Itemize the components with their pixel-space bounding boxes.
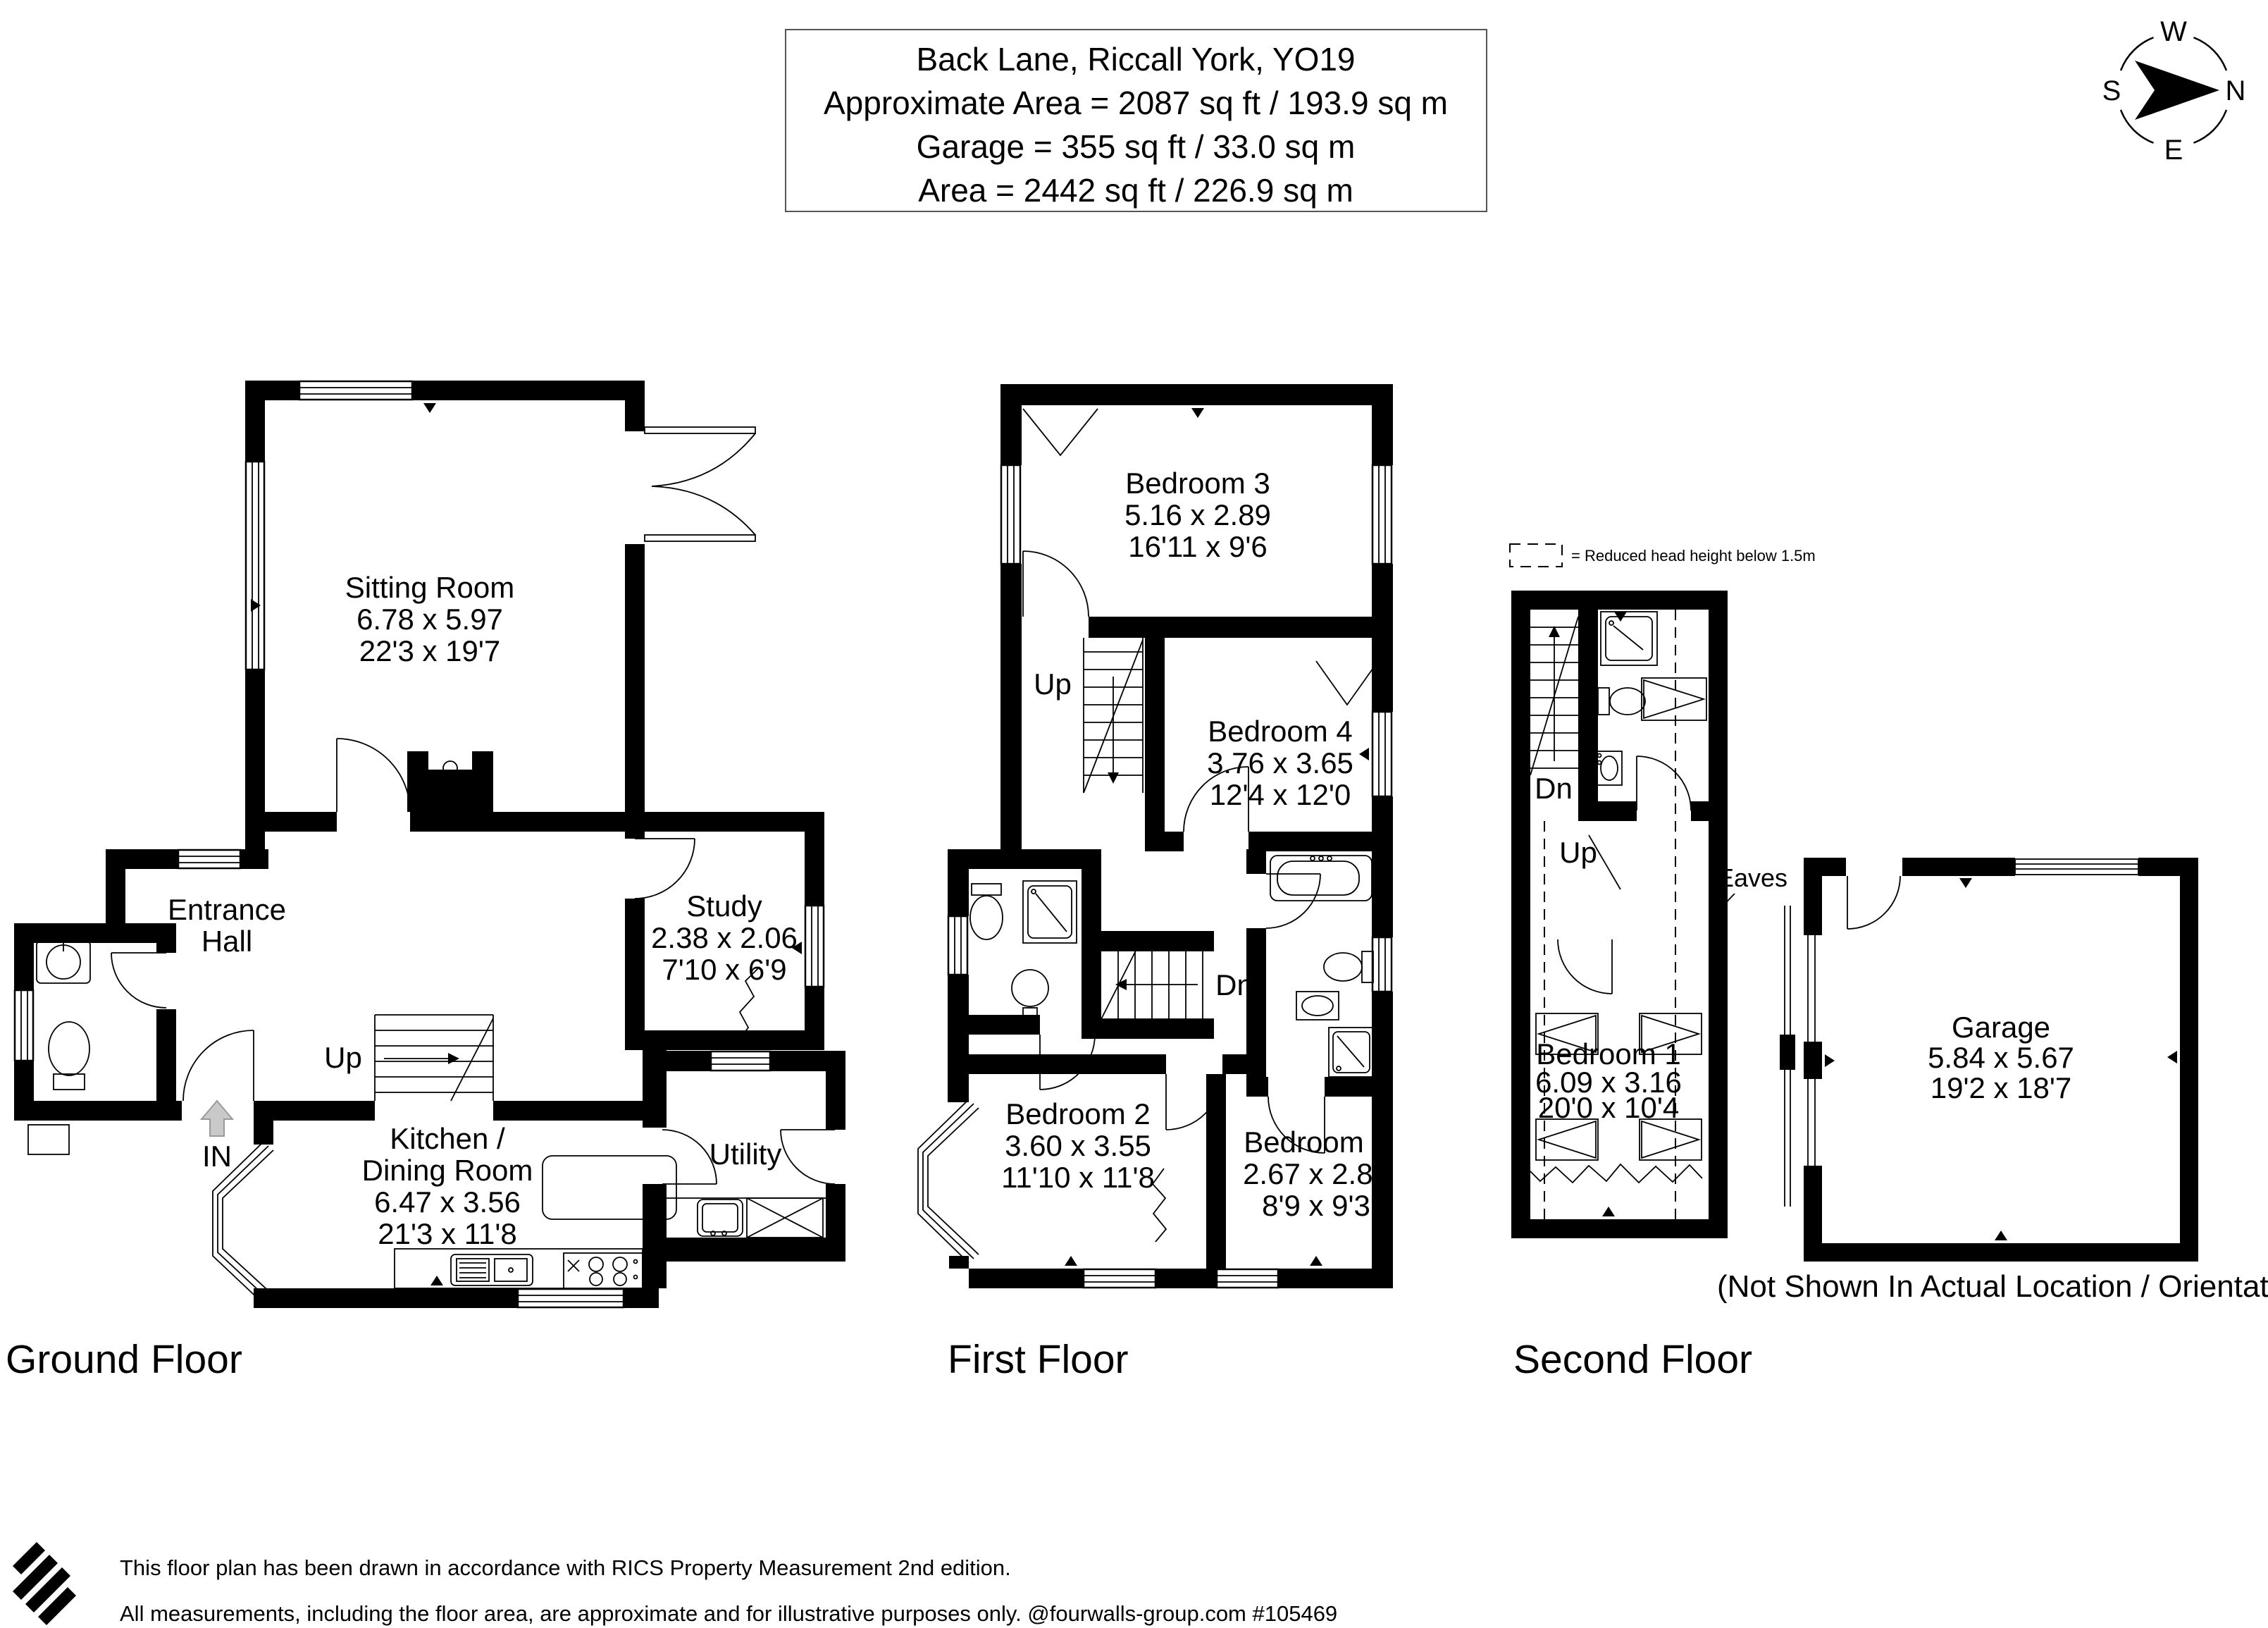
skylight-icon — [1536, 1119, 1598, 1160]
room-dim-metric: 6.78 x 5.97 — [357, 603, 503, 636]
stairs-up-label: Up — [1559, 836, 1597, 869]
window — [1372, 712, 1392, 796]
room-name: Garage — [1952, 1011, 2050, 1044]
stairs-down-label: Dn — [1215, 968, 1253, 1001]
window — [299, 381, 412, 400]
north-arrow-icon — [2135, 61, 2219, 120]
stove — [564, 1253, 643, 1288]
compass-north: N — [2226, 75, 2246, 106]
room-name: Bedroom 5 — [1244, 1126, 1388, 1159]
compass-east: E — [2164, 135, 2183, 166]
legend-text: = Reduced head height below 1.5m — [1571, 547, 1816, 565]
door-arc — [1558, 939, 1612, 994]
window — [246, 462, 264, 670]
room-name: Kitchen / — [390, 1122, 505, 1155]
window — [1217, 1269, 1278, 1288]
closet-doors — [1316, 661, 1378, 705]
room-dim-imperial: 21'3 x 11'8 — [378, 1217, 516, 1250]
room-dim-imperial: 8'9 x 9'3 — [1262, 1189, 1370, 1222]
room-dim-imperial: 7'10 x 6'9 — [662, 953, 786, 986]
dim-tick — [1825, 1054, 1835, 1067]
door-arc — [781, 1130, 835, 1184]
door-arc — [1023, 551, 1089, 617]
room-dim-metric: 3.76 x 3.65 — [1207, 746, 1353, 779]
fireplace — [407, 751, 493, 812]
total-area-line: Area = 2442 sq ft / 226.9 sq m — [918, 172, 1353, 209]
dim-tick — [2167, 1051, 2177, 1063]
room-dim-metric: 2.38 x 2.06 — [651, 921, 798, 954]
kitchen-sink — [451, 1254, 533, 1285]
window — [1372, 465, 1392, 564]
shower — [1023, 881, 1077, 943]
stairs-up — [1084, 638, 1143, 793]
stairs-up-label: Up — [324, 1041, 362, 1074]
skylight-icon — [1640, 1119, 1702, 1160]
room-name: Sitting Room — [345, 571, 514, 604]
footer-line2: All measurements, including the floor ar… — [120, 1601, 1337, 1626]
door-arc — [1637, 756, 1691, 810]
toilet — [49, 1022, 89, 1090]
garage-plan: Garage 5.84 x 5.67 19'2 x 18'7 (Not Show… — [1717, 858, 2268, 1304]
dim-tick — [1959, 878, 1972, 888]
room-dim-imperial: 11'10 x 11'8 — [1001, 1161, 1155, 1194]
window — [1001, 465, 1020, 564]
dim-tick — [1602, 1207, 1615, 1216]
door-arc — [337, 739, 410, 812]
window — [1084, 1269, 1155, 1288]
room-name: Hall — [202, 925, 252, 958]
window — [805, 906, 824, 987]
shower — [1329, 1028, 1374, 1077]
title-box: Back Lane, Riccall York, YO19 Approximat… — [786, 30, 1487, 211]
stairs-down — [1530, 617, 1578, 775]
dim-tick — [1359, 748, 1369, 760]
stairs-down — [1101, 951, 1214, 1019]
fourwalls-logo — [13, 1542, 76, 1625]
bay-window — [918, 1091, 979, 1269]
door-arc — [1847, 876, 1900, 929]
compass-icon: W N E S — [2092, 10, 2255, 171]
address-line: Back Lane, Riccall York, YO19 — [916, 41, 1355, 78]
bathtub — [1270, 856, 1372, 901]
reduced-head-height-legend: = Reduced head height below 1.5m — [1510, 544, 1816, 567]
door-arc — [183, 1030, 254, 1101]
window — [15, 990, 33, 1061]
room-dim-metric: 6.47 x 3.56 — [374, 1185, 521, 1219]
dim-tick — [1995, 1231, 2007, 1240]
entry-arrow-icon — [202, 1101, 233, 1136]
approximate-area-line: Approximate Area = 2087 sq ft / 193.9 sq… — [824, 85, 1448, 121]
second-floor-plan: = Reduced head height below 1.5m — [1510, 544, 1816, 1382]
door-arc — [635, 839, 695, 899]
room-name: Study — [686, 889, 762, 923]
stairs-up-label: Up — [1034, 667, 1072, 701]
appliance — [747, 1198, 823, 1238]
stairs-down-label: Dn — [1535, 772, 1573, 805]
first-floor-plan: Bedroom 3 5.16 x 2.89 16'11 x 9'6 Up Bed… — [918, 384, 1393, 1382]
garage-door — [2015, 859, 2138, 875]
toilet — [970, 884, 1003, 939]
room-dim-imperial: 19'2 x 18'7 — [1931, 1071, 2072, 1104]
floor-label-first: First Floor — [948, 1337, 1129, 1382]
window — [1372, 937, 1392, 992]
dim-tick — [1310, 1256, 1322, 1266]
sink — [37, 941, 90, 983]
room-name: Bedroom 3 — [1125, 467, 1270, 500]
room-dim-metric: 2.67 x 2.81 — [1243, 1157, 1389, 1190]
room-dim-metric: 5.84 x 5.67 — [1928, 1041, 2074, 1074]
floor-label-ground: Ground Floor — [6, 1337, 242, 1382]
dim-tick — [1191, 408, 1204, 418]
room-dim-imperial: 16'11 x 9'6 — [1128, 530, 1267, 563]
floor-label-second: Second Floor — [1513, 1337, 1752, 1382]
skylight-icon — [1642, 678, 1706, 720]
garage-caption: (Not Shown In Actual Location / Orientat… — [1717, 1269, 2268, 1304]
shower — [1601, 612, 1657, 665]
entry-in-label: IN — [202, 1140, 232, 1173]
room-name: Entrance — [168, 893, 286, 926]
window — [518, 1289, 624, 1307]
dim-tick — [1065, 1256, 1077, 1266]
room-dim-imperial: 12'4 x 12'0 — [1210, 778, 1351, 811]
room-name: Bedroom 2 — [1005, 1097, 1150, 1130]
room-name: Utility — [709, 1137, 782, 1171]
utility-sink — [667, 1198, 826, 1236]
sink — [1296, 992, 1339, 1020]
room-dim-imperial: 20'0 x 10'4 — [1538, 1091, 1680, 1124]
eaves-label: Eaves — [1717, 863, 1787, 892]
compass-west: W — [2160, 16, 2187, 47]
window — [711, 1052, 770, 1071]
toilet — [1598, 688, 1645, 715]
footer-line1: This floor plan has been drawn in accord… — [120, 1555, 1011, 1580]
toilet — [1324, 951, 1373, 982]
room-name: Bedroom 4 — [1208, 715, 1352, 748]
legend-dashed-box — [1510, 544, 1562, 567]
sink — [1012, 970, 1048, 1016]
garage-area-line: Garage = 355 sq ft / 33.0 sq m — [917, 128, 1356, 165]
dim-tick — [430, 1276, 443, 1285]
sink — [1597, 751, 1622, 785]
room-dim-metric: 3.60 x 3.55 — [1005, 1129, 1151, 1162]
door-arc — [111, 953, 166, 1008]
floorplan-canvas: Back Lane, Riccall York, YO19 Approximat… — [0, 0, 2268, 1628]
dim-tick — [423, 403, 436, 413]
ground-floor-plan: Sitting Room 6.78 x 5.97 22'3 x 19'7 Ent… — [6, 381, 845, 1382]
stairs-up — [375, 1015, 493, 1101]
floorplan-page: Back Lane, Riccall York, YO19 Approximat… — [0, 0, 2268, 1628]
compass-south: S — [2102, 75, 2121, 106]
french-doors — [645, 427, 755, 541]
closet-doors — [1023, 409, 1098, 455]
room-dim-metric: 5.16 x 2.89 — [1124, 498, 1271, 531]
room-dim-imperial: 22'3 x 19'7 — [359, 634, 501, 667]
room-name: Dining Room — [362, 1154, 533, 1187]
exterior-step — [28, 1125, 69, 1154]
window — [948, 916, 967, 975]
opening-zigzag — [1153, 1168, 1166, 1242]
window — [178, 850, 240, 868]
footer: This floor plan has been drawn in accord… — [13, 1542, 1337, 1626]
